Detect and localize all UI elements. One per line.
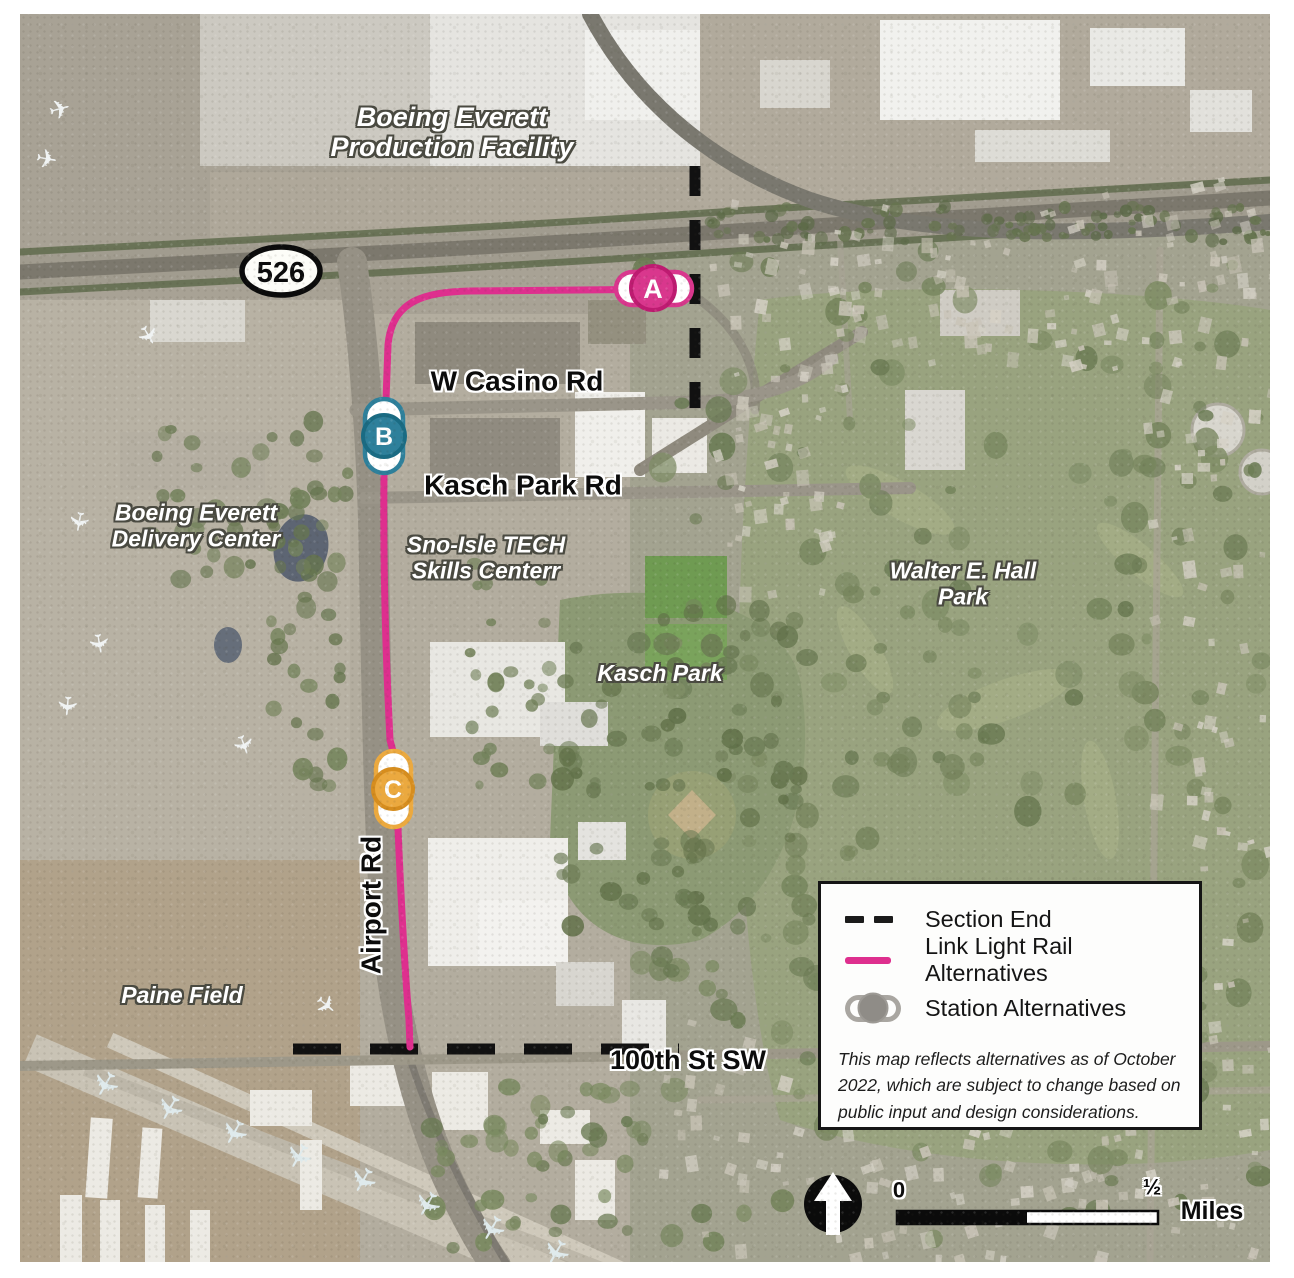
station-A-marker: A [616,266,692,310]
scale-bar [897,1211,1158,1224]
station-C-marker: C [373,751,413,827]
route-shield-526: 526 [242,247,320,295]
station-A-letter: A [643,274,663,304]
map-page: { "map": { "place_labels": { "boeing_pro… [0,0,1294,1278]
light-rail-line-icon [845,957,909,964]
legend-box: Section End Link Light Rail Alternatives… [818,881,1202,1130]
station-alternatives-icon [845,995,909,1022]
station-B-marker: B [363,399,405,473]
legend-row-station: Station Alternatives [845,982,1199,1034]
legend-row-light-rail: Link Light Rail Alternatives [845,938,1199,982]
legend-note: This map reflects alternatives as of Oct… [838,1046,1182,1125]
legend-label-light-rail: Link Light Rail Alternatives [925,933,1199,987]
white-building [880,20,1060,120]
legend-label-station: Station Alternatives [925,995,1126,1022]
section-end-dash-icon [845,916,909,923]
station-B-letter: B [375,423,393,451]
route-shield-number: 526 [257,257,305,289]
svg-text:✈: ✈ [51,694,83,718]
station-C-letter: C [384,776,402,804]
legend-label-section-end: Section End [925,906,1052,933]
